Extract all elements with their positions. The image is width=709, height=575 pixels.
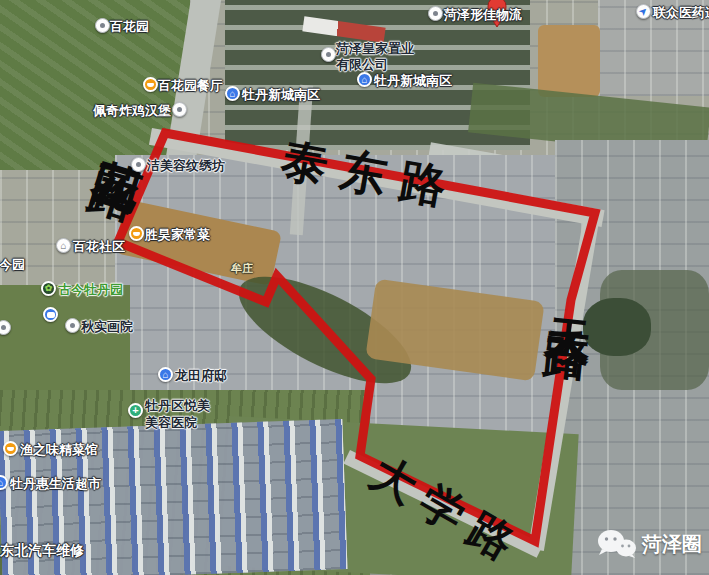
garden-icon: ✿ <box>41 281 56 296</box>
compass-glyph: ➤ <box>638 6 650 18</box>
building-glyph: ⌂ <box>229 89 235 99</box>
bus-stop-icon <box>43 307 58 322</box>
building-glyph: ⌂ <box>361 75 367 85</box>
poi-label-line2: 美容医院 <box>145 414 197 432</box>
logistics-poi-icon <box>428 6 443 21</box>
poi-label: 洁美容纹绣坊 <box>147 157 225 175</box>
building-glyph: ⌂ <box>60 241 66 251</box>
community-icon: ⌂ <box>56 238 71 253</box>
residence-icon: ⌂ <box>158 367 173 382</box>
poi-label: 百花社区 <box>73 238 125 256</box>
poi-label: 牡丹新城南区 <box>242 86 320 104</box>
poi-label: 牡丹惠生活超市 <box>10 475 101 493</box>
road-label-tianxiang: 天香路 <box>550 281 598 310</box>
company-poi-icon <box>321 47 336 62</box>
restaurant-icon <box>143 77 158 92</box>
cross-glyph: + <box>132 405 138 416</box>
poi-label: 古今园 <box>0 256 25 274</box>
park-poi-icon <box>95 18 110 33</box>
poi-label-line1: 牡丹区悦美 <box>145 397 210 415</box>
restaurant-icon <box>3 441 18 456</box>
pharmacy-compass-icon: ➤ <box>636 4 651 19</box>
flower-glyph: ✿ <box>45 284 53 293</box>
restaurant-icon <box>129 226 144 241</box>
poi-label: 古今牡丹园 <box>58 281 123 299</box>
hospital-icon: + <box>128 403 143 418</box>
poi-label: 菏泽形佳物流 <box>444 6 522 24</box>
poi-label: 胜昊家常菜 <box>145 226 210 244</box>
poi-label: 百花园餐厅 <box>158 77 223 95</box>
poi-label: 联众医药连锁 <box>653 4 709 22</box>
satellite-map: 泰东路 天香路 大学路 花园路 百花园 百花园餐厅 佩奇炸鸡汉堡 菏泽皇家置业 … <box>0 0 709 575</box>
building-glyph: ⌂ <box>0 478 4 488</box>
poi-label: 东北汽车维修 <box>0 542 84 560</box>
poi-label: 牡丹新城南区 <box>374 72 452 90</box>
residence-icon: ⌂ <box>225 86 240 101</box>
poi-label: 渔之味精菜馆 <box>20 441 98 459</box>
poi-label: 秋实画院 <box>81 318 133 336</box>
building-glyph: ⌂ <box>162 370 168 380</box>
wechat-icon <box>596 529 638 559</box>
watermark: 菏泽圈 <box>596 529 702 559</box>
poi-dot-icon <box>172 102 187 117</box>
poi-label: 百花园 <box>110 18 149 36</box>
academy-poi-icon <box>65 318 80 333</box>
village-label: 牟庄 <box>231 261 253 276</box>
poi-label: 佩奇炸鸡汉堡 <box>93 102 171 120</box>
watermark-text: 菏泽圈 <box>642 531 702 558</box>
residence-icon: ⌂ <box>357 72 372 87</box>
poi-label: 龙田府邸 <box>175 367 227 385</box>
beauty-poi-icon <box>131 157 146 172</box>
